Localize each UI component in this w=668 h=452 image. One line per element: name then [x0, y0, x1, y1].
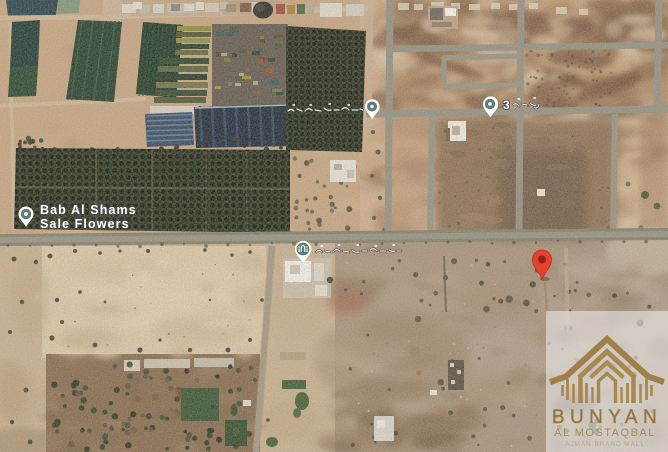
svg-text:AL MOSTAQBAL: AL MOSTAQBAL — [554, 427, 656, 439]
svg-text:Sale Flowers: Sale Flowers — [40, 217, 130, 231]
svg-text:3: 3 — [503, 98, 510, 112]
svg-text:AJMAN BRAND MALL: AJMAN BRAND MALL — [565, 441, 645, 448]
svg-text:Bab Al Shams: Bab Al Shams — [40, 203, 137, 217]
svg-text:BUNYAN: BUNYAN — [552, 407, 662, 428]
